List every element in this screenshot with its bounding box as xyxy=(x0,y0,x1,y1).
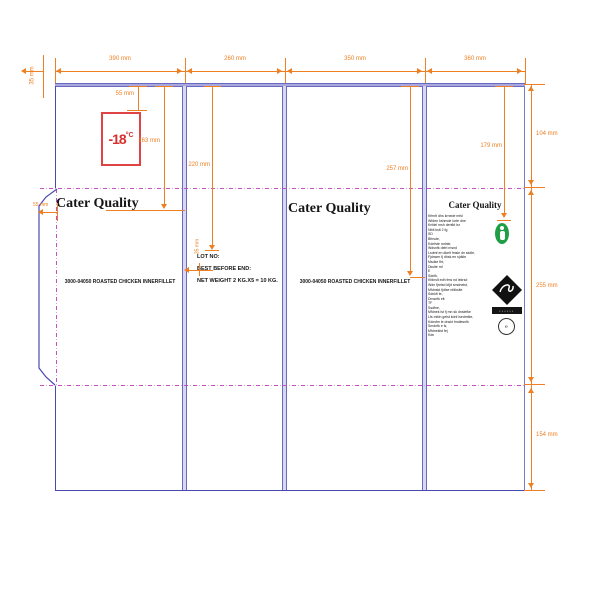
dim-line-right xyxy=(531,84,532,491)
dim-arrow xyxy=(528,86,534,91)
dim-lot-height: 220 mm xyxy=(170,162,210,169)
fold-line-top xyxy=(40,188,525,189)
crease-divider xyxy=(182,86,187,490)
dim-line-lot-height xyxy=(212,86,213,248)
product-line-panel3: 3000-04050 ROASTED CHICKEN INNERFILLET xyxy=(290,279,420,285)
dim-tick xyxy=(425,58,426,84)
dim-right-top: 104 mm xyxy=(536,131,558,138)
crease-divider xyxy=(422,86,427,490)
dim-tick xyxy=(401,86,419,87)
dim-top-panel3: 350 mm xyxy=(325,56,385,63)
print-info-block: LOT NO: BEST BEFORE END: NET WEIGHT 2 KG… xyxy=(197,251,278,287)
brand-title-panel4: Cater Quality xyxy=(427,200,523,210)
dim-arrow xyxy=(161,204,167,209)
dim-arrow xyxy=(407,271,413,276)
dim-arrow xyxy=(528,377,534,382)
dim-arrow xyxy=(38,209,43,215)
dim-arrow xyxy=(517,68,522,74)
cut-line-bottom xyxy=(55,490,525,491)
dim-lot-indent: 35 mm xyxy=(195,229,202,265)
ingredients-fine-print: Kfmrlt dhs krnede mfslWfden kshmde lorfe… xyxy=(428,214,486,338)
crease-divider xyxy=(282,86,287,490)
dim-tick xyxy=(524,384,545,385)
quality-seal-icon xyxy=(495,223,509,244)
dim-product-height: 257 mm xyxy=(368,166,408,173)
dim-lip-height: 35 mm xyxy=(30,58,37,94)
dim-right-middle: 255 mm xyxy=(536,283,558,290)
best-before-label: BEST BEFORE END: xyxy=(197,263,278,275)
dieline-canvas: 390 mm 260 mm 350 mm 360 mm 35 mm -18°C … xyxy=(0,0,600,600)
dim-arrow xyxy=(187,68,192,74)
dim-arrow xyxy=(177,68,182,74)
round-stamp-icon: ℮ xyxy=(498,318,515,335)
dim-arrow xyxy=(184,267,189,273)
dim-arrow xyxy=(417,68,422,74)
dim-tick xyxy=(525,58,526,84)
cut-line-top xyxy=(55,83,525,87)
dim-arrow xyxy=(528,190,534,195)
dim-arrow xyxy=(528,483,534,488)
dim-tick xyxy=(410,277,425,278)
dim-arrow xyxy=(528,388,534,393)
fine-print-line: Kdn xyxy=(428,333,486,338)
dim-tick xyxy=(187,270,213,271)
dim-tick xyxy=(106,210,185,211)
lot-number-label: LOT NO: xyxy=(197,251,278,263)
cut-line-left-top xyxy=(55,86,56,188)
dim-tick xyxy=(205,250,219,251)
dim-brand-height: 163 mm xyxy=(120,138,160,145)
net-weight-label: NET WEIGHT 2 KG.X5 = 10 KG. xyxy=(197,275,278,287)
dim-tick xyxy=(204,86,221,87)
dim-arrow xyxy=(287,68,292,74)
certification-diamond-icon xyxy=(491,274,523,306)
dim-tick xyxy=(155,86,173,87)
dim-tick xyxy=(127,110,147,111)
dim-tick xyxy=(524,490,545,491)
dim-seal-height: 179 mm xyxy=(462,143,502,150)
dim-tick xyxy=(199,263,200,276)
product-line-panel1: 3000-04050 ROASTED CHICKEN INNERFILLET xyxy=(56,279,184,285)
dim-arrow xyxy=(21,68,26,74)
brand-title-panel3: Cater Quality xyxy=(288,201,371,217)
dim-freezer-offset: 55 mm xyxy=(96,91,134,98)
dim-right-bottom: 154 mm xyxy=(536,432,558,439)
cut-line-left-bottom xyxy=(55,385,56,491)
dim-line-freezer-offset xyxy=(138,86,139,111)
dim-flap-width: 55 mm xyxy=(33,202,48,209)
dim-tick xyxy=(57,203,58,221)
dim-tick xyxy=(497,220,511,221)
dim-tick xyxy=(129,86,147,87)
fold-line-bottom xyxy=(40,385,525,386)
dim-tick xyxy=(495,86,513,87)
dim-arrow xyxy=(56,68,61,74)
dim-line-seal-height xyxy=(504,86,505,217)
glue-flap-outline xyxy=(36,186,58,388)
dim-arrow xyxy=(427,68,432,74)
dim-tick xyxy=(524,84,545,85)
dim-arrow xyxy=(501,213,507,218)
certification-bar: •••••• xyxy=(492,307,522,314)
dim-line-product-height xyxy=(410,86,411,274)
dim-arrow xyxy=(528,180,534,185)
dim-tick xyxy=(285,58,286,84)
dim-top-panel2: 260 mm xyxy=(205,56,265,63)
dim-top-panel4: 360 mm xyxy=(445,56,505,63)
cut-line-right xyxy=(524,86,525,490)
dim-tick xyxy=(25,71,43,72)
dim-line-brand-height xyxy=(164,86,165,207)
dim-arrow xyxy=(277,68,282,74)
dim-top-panel1: 390 mm xyxy=(90,56,150,63)
dim-tick xyxy=(524,187,545,188)
dim-tick xyxy=(185,58,186,84)
dim-tick xyxy=(43,55,44,98)
